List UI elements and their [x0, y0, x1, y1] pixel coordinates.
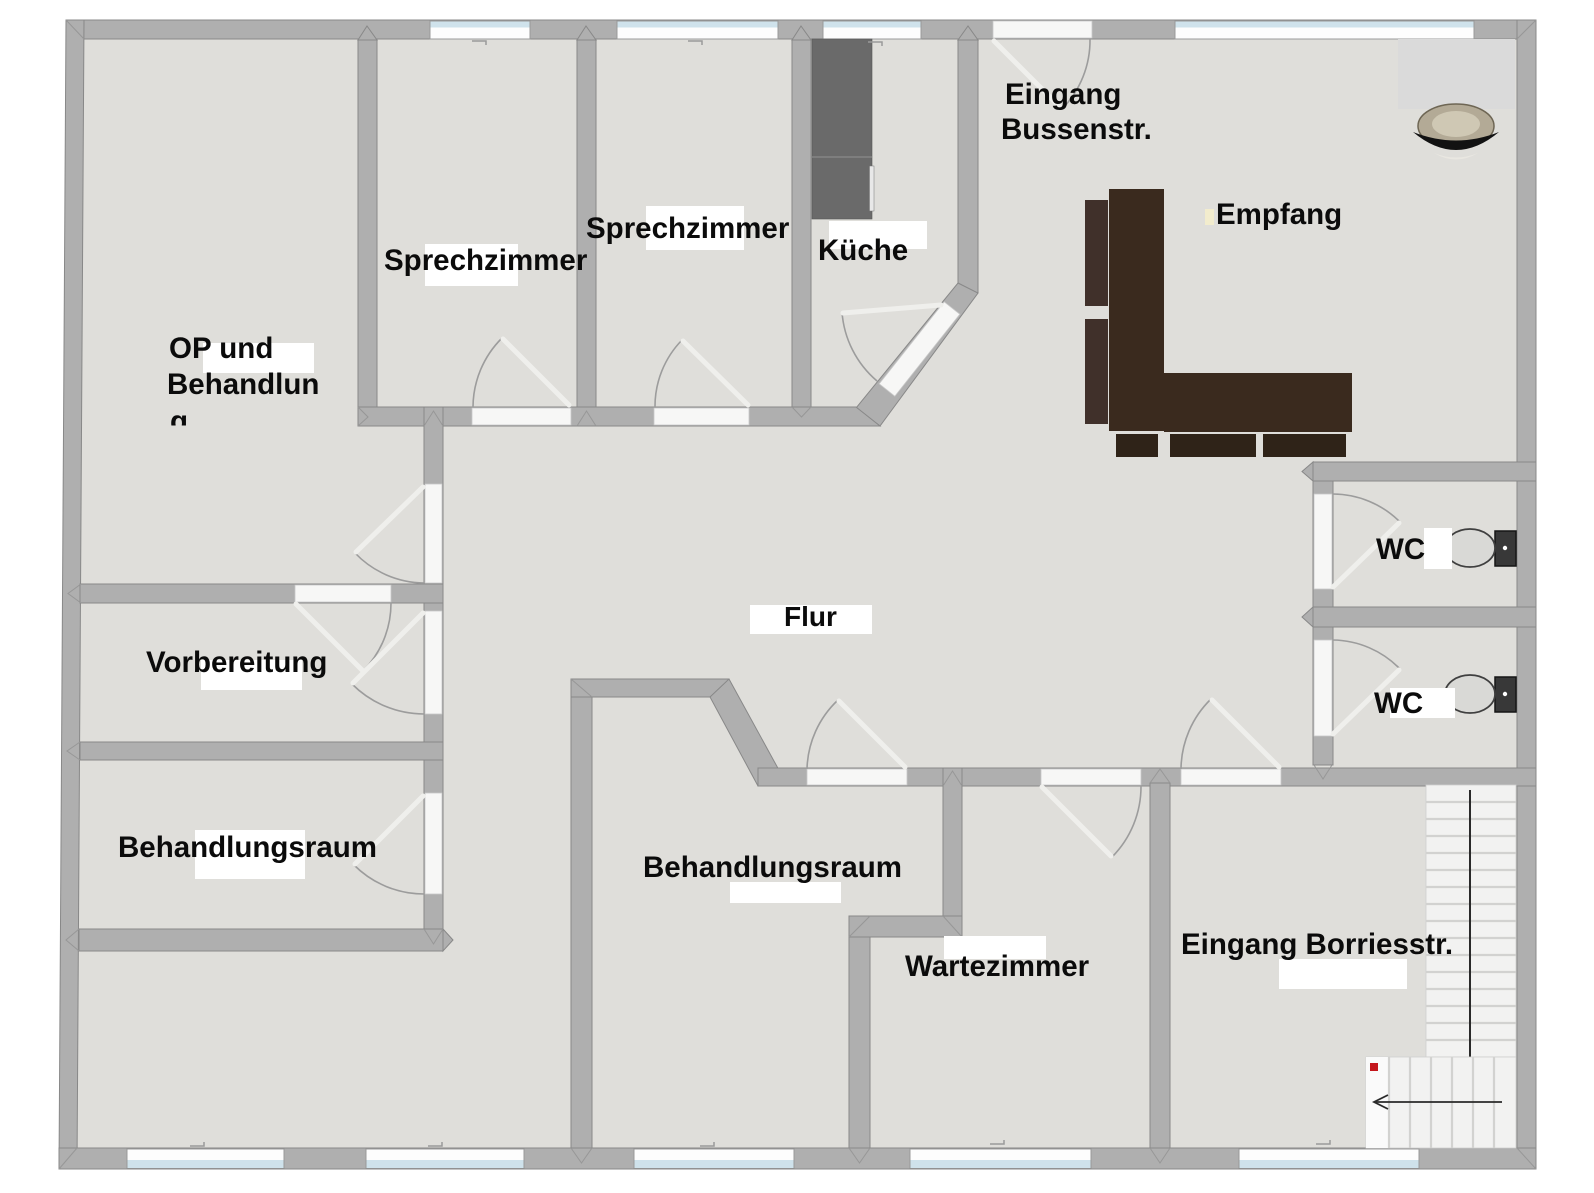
svg-text:Eingang: Eingang: [1005, 78, 1121, 111]
svg-text:Behandlungsraum: Behandlungsraum: [118, 831, 377, 864]
svg-text:Flur: Flur: [784, 601, 837, 632]
svg-text:WC: WC: [1374, 687, 1423, 720]
svg-text:Behandlun: Behandlun: [167, 368, 319, 401]
svg-text:Empfang: Empfang: [1216, 198, 1342, 231]
svg-text:Eingang Borriesstr.: Eingang Borriesstr.: [1181, 928, 1453, 961]
svg-text:Wartezimmer: Wartezimmer: [905, 950, 1090, 983]
svg-text:Sprechzimmer: Sprechzimmer: [586, 212, 790, 245]
svg-text:OP und: OP und: [169, 332, 273, 365]
svg-text:Behandlungsraum: Behandlungsraum: [643, 851, 902, 884]
svg-text:WC: WC: [1376, 533, 1425, 566]
svg-text:Bussenstr.: Bussenstr.: [1001, 113, 1152, 146]
svg-text:Sprechzimmer: Sprechzimmer: [384, 244, 588, 277]
svg-text:Vorbereitung: Vorbereitung: [146, 646, 327, 679]
svg-text:Küche: Küche: [818, 234, 908, 267]
